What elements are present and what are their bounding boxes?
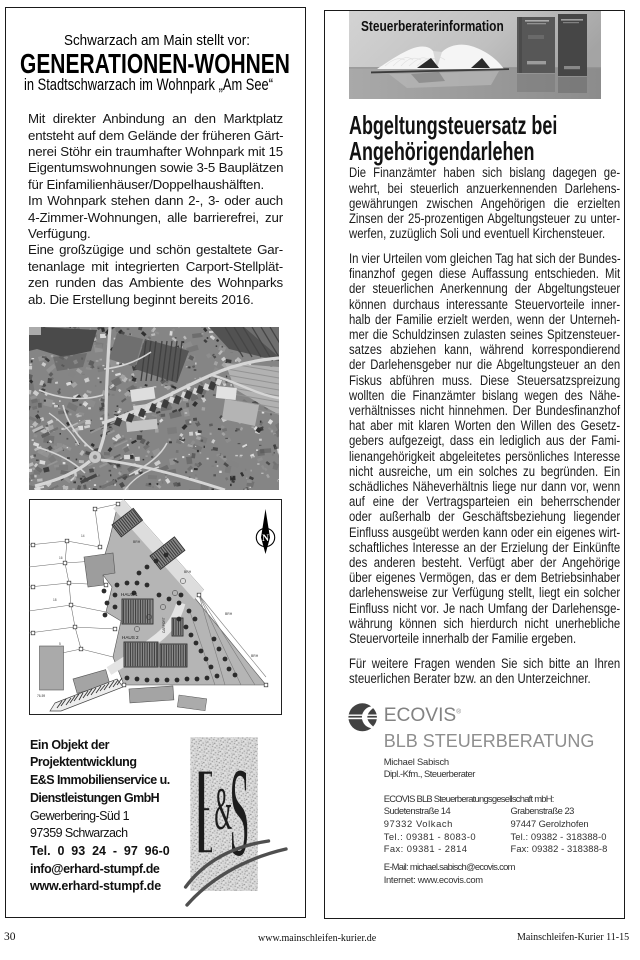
svg-text:76-59: 76-59 <box>37 694 45 698</box>
svg-text:BRH: BRH <box>133 540 141 544</box>
svg-text:N: N <box>262 533 269 543</box>
svg-text:BRH: BRH <box>225 612 233 616</box>
svg-text:5: 5 <box>59 642 61 646</box>
svg-text:HAUS 2: HAUS 2 <box>122 635 139 640</box>
svg-text:16: 16 <box>59 556 63 560</box>
svg-text:14: 14 <box>81 534 85 538</box>
svg-text:BRH: BRH <box>184 570 192 574</box>
svg-text:HAUS 1: HAUS 1 <box>121 592 138 597</box>
svg-text:CARPORT: CARPORT <box>162 617 166 633</box>
svg-text:18: 18 <box>53 598 57 602</box>
svg-text:BRH: BRH <box>251 654 259 658</box>
